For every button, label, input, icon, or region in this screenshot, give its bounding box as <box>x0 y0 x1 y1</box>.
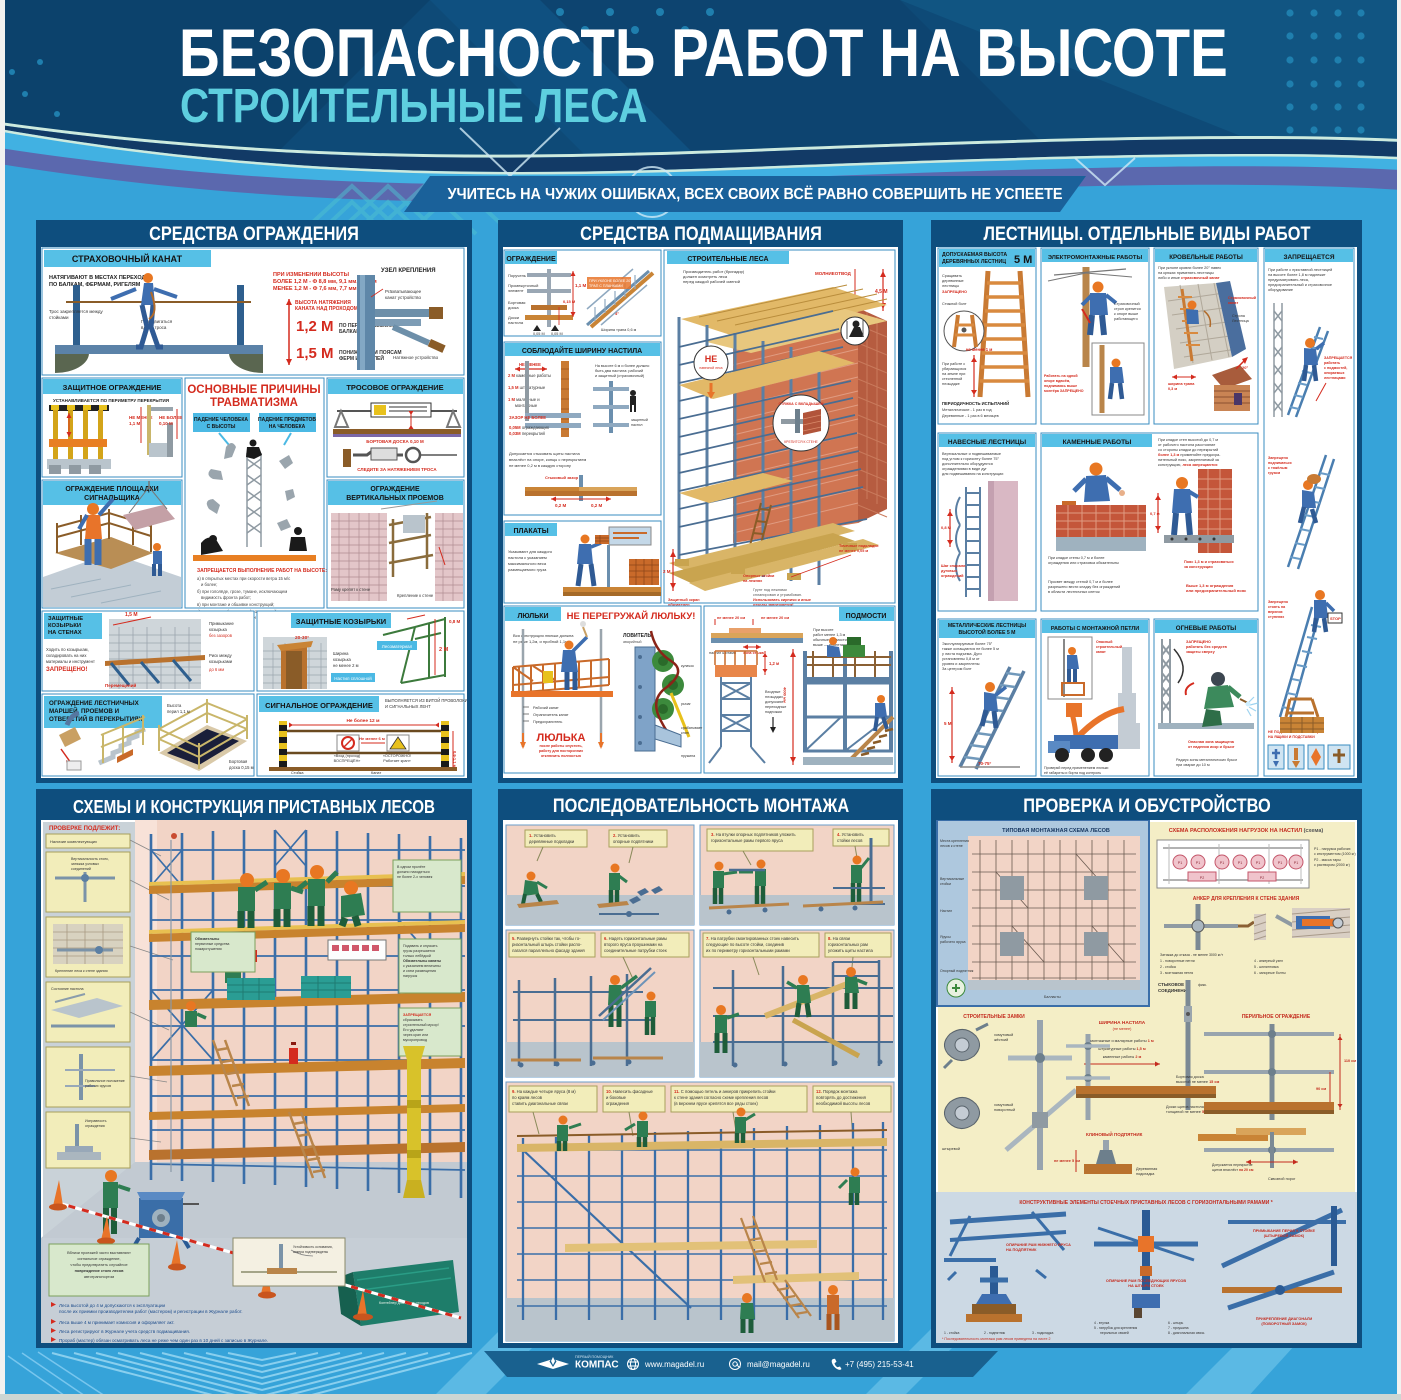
svg-text:2 М: 2 М <box>439 647 449 653</box>
svg-text:убирающихся: убирающихся <box>942 367 966 371</box>
svg-text:ЗАПРЕЩЕНО!: ЗАПРЕЩЕНО! <box>46 667 87 673</box>
svg-text:опорные подпятники: опорные подпятники <box>613 839 654 844</box>
svg-text:либо и иные страховочный канат: либо и иные страховочный канат <box>1158 276 1220 280</box>
svg-text:установлены 0,8 м от: установлены 0,8 м от <box>942 657 980 661</box>
svg-text:При работе с: При работе с <box>942 362 965 366</box>
svg-text:Грунт под лежнями: Грунт под лежнями <box>753 588 787 592</box>
svg-text:штыревой: штыревой <box>942 1147 960 1151</box>
svg-text:Р1 - нагрузка рабочих: Р1 - нагрузка рабочих <box>1314 847 1351 851</box>
svg-text:повторять до достижения: повторять до достижения <box>816 1095 866 1100</box>
svg-text:срабатывает: срабатывает <box>681 726 703 730</box>
svg-text:Леса регистрируют в Журнале уч: Леса регистрируют в Журнале учета средст… <box>59 1329 190 1334</box>
svg-text:дополнительно оборудуются: дополнительно оборудуются <box>942 462 993 466</box>
svg-text:ПАДЕНИЕ ЧЕЛОВЕКА: ПАДЕНИЕ ЧЕЛОВЕКА <box>194 417 248 423</box>
svg-text:ВОСПРЕЩЁН»: ВОСПРЕЩЁН» <box>334 759 361 763</box>
svg-text:Защитный экран: Защитный экран <box>668 598 700 602</box>
svg-text:ВЕРТИКАЛЬНЫХ ПРОЕМОВ: ВЕРТИКАЛЬНЫХ ПРОЕМОВ <box>346 495 444 502</box>
svg-text:Затяжка до отказа - не менее 3: Затяжка до отказа - не менее 3000 кг/т <box>1160 953 1224 957</box>
svg-text:Прораб (мастер) обязан осматри: Прораб (мастер) обязан осматривать леса … <box>59 1337 268 1343</box>
svg-text:5. Развернуть стойки так, чтоб: 5. Развернуть стойки так, чтобы го- <box>512 936 581 941</box>
svg-text:ДЕРЕВЯННЫХ ЛЕСТНИЦ: ДЕРЕВЯННЫХ ЛЕСТНИЦ <box>942 259 1006 265</box>
svg-text:Р1: Р1 <box>1278 861 1282 865</box>
svg-text:1 - поворотные петли: 1 - поворотные петли <box>1160 959 1195 963</box>
svg-text:Правильное положение: Правильное положение <box>85 1079 125 1083</box>
svg-text:При работе с приставной лестни: При работе с приставной лестницей <box>1268 268 1332 272</box>
svg-text:Запрещено: Запрещено <box>1268 456 1289 460</box>
svg-text:ЛЮЛЬКИ: ЛЮЛЬКИ <box>517 613 548 620</box>
svg-text:деревянные подкладки: деревянные подкладки <box>529 839 575 844</box>
svg-text:mail@magadel.ru: mail@magadel.ru <box>747 1360 810 1369</box>
svg-text:работать: работать <box>1324 361 1341 365</box>
svg-text:(ШТЫРЕВОЙ ЗАМОК): (ШТЫРЕВОЙ ЗАМОК) <box>1264 1234 1305 1238</box>
svg-text:через кран или: через кран или <box>403 1033 428 1037</box>
svg-text:20-30°: 20-30° <box>295 635 309 641</box>
svg-text:настила: настила <box>508 320 524 325</box>
svg-text:на лежнях: на лежнях <box>743 579 763 583</box>
svg-text:5 М: 5 М <box>944 721 952 726</box>
svg-text:ПЕРВЫЙ ПОМОЩНИК: ПЕРВЫЙ ПОМОЩНИК <box>575 1355 614 1359</box>
svg-text:20°: 20° <box>1242 365 1248 370</box>
svg-text:2. Установить: 2. Установить <box>613 833 640 838</box>
svg-text:1 М малярные и: 1 М малярные и <box>508 397 540 402</box>
svg-text:Запрещено: Запрещено <box>1268 600 1289 604</box>
svg-text:ступенях: ступенях <box>1268 615 1284 619</box>
svg-text:работать без средств: работать без средств <box>1186 645 1227 649</box>
svg-text:Состояние настила: Состояние настила <box>51 987 83 991</box>
svg-text:Поручень: Поручень <box>508 273 526 278</box>
svg-text:работу для посторонних: работу для посторонних <box>539 749 583 753</box>
svg-text:не менее 0,05 м: не менее 0,05 м <box>839 549 868 553</box>
svg-text:элемент: элемент <box>508 288 524 293</box>
svg-text:следующие по высоте стойки, со: следующие по высоте стойки, соединив <box>706 942 785 947</box>
svg-text:2 - подпятник: 2 - подпятник <box>984 1331 1006 1335</box>
svg-text:ЗАПРЕЩЕНО: ЗАПРЕЩЕНО <box>942 290 967 294</box>
svg-text:70-75°: 70-75° <box>978 761 992 766</box>
svg-text:ограждения: ограждения <box>85 1124 105 1128</box>
svg-text:КЛИНОВЫЙ ПОДПЯТНИК: КЛИНОВЫЙ ПОДПЯТНИК <box>1086 1130 1143 1137</box>
svg-text:Предохранитель: Предохранитель <box>533 720 562 724</box>
svg-text:Стойка: Стойка <box>291 771 304 775</box>
svg-text:Ограничитель канат: Ограничитель канат <box>533 713 569 717</box>
svg-text:ЛЮЛЬКА: ЛЮЛЬКА <box>537 732 586 744</box>
svg-text:доска: доска <box>508 305 519 310</box>
svg-text:ПОДМОСТИ: ПОДМОСТИ <box>846 613 887 620</box>
svg-text:каменные работы 2 м: каменные работы 2 м <box>1103 1055 1142 1059</box>
svg-text:пружина: пружина <box>681 754 695 758</box>
svg-text:лагался параллельно фасаду зда: лагался параллельно фасаду здания <box>512 948 585 953</box>
svg-text:Крепление к стене: Крепление к стене <box>397 593 434 598</box>
svg-text:6. Надеть горизонтальные рамы: 6. Надеть горизонтальные рамы <box>604 936 667 941</box>
svg-text:НЕ МЕНЕЕ: НЕ МЕНЕЕ <box>519 362 541 367</box>
svg-text:чтобы предотвратить случайное: чтобы предотвратить случайное <box>70 1263 127 1267</box>
svg-text:Эксплуатируемые более 75°: Эксплуатируемые более 75° <box>942 642 993 646</box>
svg-text:не менее 0,2 м в каждую сторон: не менее 0,2 м в каждую сторону <box>509 463 571 468</box>
svg-text:0,05М ограждающих: 0,05М ограждающих <box>509 425 550 430</box>
svg-text:Страховочный: Страховочный <box>1114 302 1140 306</box>
svg-text:9. На каждые четыре яруса (8 м: 9. На каждые четыре яруса (8 м) <box>512 1089 576 1094</box>
svg-text:толщиной не менее 5 см: толщиной не менее 5 см <box>1166 1110 1210 1114</box>
svg-text:и схем размещения: и схем размещения <box>403 969 436 973</box>
svg-text:должно находиться: должно находиться <box>397 870 430 874</box>
svg-text:1. Установить: 1. Установить <box>529 833 556 838</box>
svg-text:с указанием величины: с указанием величины <box>403 964 441 968</box>
svg-text:с инструментом (1000 кг): с инструментом (1000 кг) <box>1314 852 1356 856</box>
svg-text:Устойчивость основания,: Устойчивость основания, <box>293 1245 333 1249</box>
svg-text:4 - анкерный узел: 4 - анкерный узел <box>1254 959 1283 963</box>
svg-text:их по периметру горизонтальным: их по периметру горизонтальными рамами <box>706 948 790 953</box>
svg-text:ТИПОВАЯ МОНТАЖНАЯ СХЕМА ЛЕСОВ: ТИПОВАЯ МОНТАЖНАЯ СХЕМА ЛЕСОВ <box>1002 828 1110 834</box>
svg-text:Вблизи проезжей части выставля: Вблизи проезжей части выставляют <box>67 1251 131 1255</box>
svg-text:подниматься: подниматься <box>1268 461 1292 465</box>
svg-text:Входные: Входные <box>765 690 781 694</box>
svg-text:лесов к стене: лесов к стене <box>940 844 963 848</box>
svg-text:Настил сплошной: Настил сплошной <box>334 675 372 681</box>
svg-text:5 - патрубок для крепления: 5 - патрубок для крепления <box>1094 1326 1137 1330</box>
svg-text:Не более 12 м: Не более 12 м <box>346 717 380 724</box>
svg-text:лестницы: лестницы <box>942 284 959 288</box>
svg-text:от рабочего настила расстояние: от рабочего настила расстояние <box>1158 443 1215 447</box>
svg-text:НА ПОДПЯТНИК: НА ПОДПЯТНИК <box>1006 1248 1037 1252</box>
svg-text:под углом к горизонту более 75: под углом к горизонту более 75° <box>942 457 1000 461</box>
svg-text:ПЕРИЛЬНОЕ ОГРАЖДЕНИЕ: ПЕРИЛЬНОЕ ОГРАЖДЕНИЕ <box>1242 1014 1311 1020</box>
svg-text:грузом: грузом <box>1268 471 1280 475</box>
svg-text:10. Навесить фасадные: 10. Навесить фасадные <box>606 1089 654 1094</box>
svg-text:козырька: козырька <box>209 627 228 632</box>
svg-text:второго яруса проушинами на: второго яруса проушинами на <box>604 942 663 947</box>
svg-text:Деревянная: Деревянная <box>1136 1167 1157 1171</box>
svg-text:размещаемого груза: размещаемого груза <box>508 567 547 572</box>
svg-text:0,7 м: 0,7 м <box>1150 511 1160 516</box>
svg-text:Риск между: Риск между <box>209 653 233 658</box>
svg-text:Шаг спирали: Шаг спирали <box>941 564 966 568</box>
svg-text:козырьками: козырьками <box>209 659 233 664</box>
svg-text:6 - штырь: 6 - штырь <box>1168 1321 1183 1325</box>
svg-text:За центром болт: За центром болт <box>942 667 972 671</box>
svg-text:Р1: Р1 <box>1238 861 1242 865</box>
svg-text:Раму крепят к стене: Раму крепят к стене <box>331 587 371 592</box>
svg-text:защитный: защитный <box>631 418 648 422</box>
svg-text:В одном пролёте: В одном пролёте <box>397 865 425 869</box>
svg-text:лестницами: лестницами <box>1324 376 1345 380</box>
svg-text:с тяжёлым: с тяжёлым <box>1268 466 1288 470</box>
svg-text:Металлические - 1 раз в год: Металлические - 1 раз в год <box>942 408 992 412</box>
svg-text:КАНАТА НАД ПРОХОДОМ: КАНАТА НАД ПРОХОДОМ <box>295 306 358 312</box>
svg-text:Проверяй перед применением люл: Проверяй перед применением люльки <box>1044 766 1108 770</box>
svg-text:ЗАПРЕЩАЕТСЯ: ЗАПРЕЩАЕТСЯ <box>1324 356 1353 360</box>
svg-text:СОЕДИНЕНИЕ: СОЕДИНЕНИЕ <box>1158 988 1190 993</box>
svg-text:ОПИРАНИЕ РАМ НИЖНЕГО ЯРУСА: ОПИРАНИЕ РАМ НИЖНЕГО ЯРУСА <box>1006 1243 1071 1247</box>
svg-text:фикс.: фикс. <box>1198 983 1207 987</box>
svg-text:доска 0,15 м: доска 0,15 м <box>229 765 254 770</box>
svg-text:поворотный: поворотный <box>994 1108 1015 1112</box>
svg-text:Леса выше 4 м принимает комисс: Леса выше 4 м принимает комиссия и оформ… <box>59 1320 175 1325</box>
svg-text:верхних: верхних <box>1268 610 1283 614</box>
svg-text:Лестница: Лестница <box>1232 319 1250 323</box>
svg-text:90 см: 90 см <box>1316 1087 1326 1091</box>
svg-text:8 - диагональная связь: 8 - диагональная связь <box>1168 1331 1205 1335</box>
svg-text:предохранительный и страховочн: предохранительный и страховочное <box>1268 283 1332 287</box>
svg-text:с подмостей,: с подмостей, <box>1324 366 1347 370</box>
svg-text:Указывают для каждого: Указывают для каждого <box>508 549 553 554</box>
svg-text:И СИГНАЛЬНЫХ ЛЕНТ: И СИГНАЛЬНЫХ ЛЕНТ <box>385 704 431 709</box>
svg-text:Р1: Р1 <box>1220 861 1224 865</box>
svg-text:СТЫКОВОЕ: СТЫКОВОЕ <box>1158 982 1184 987</box>
svg-text:Опорный подпятник: Опорный подпятник <box>940 969 974 973</box>
svg-text:Просвет между стеной 0,7 м и б: Просвет между стеной 0,7 м и более <box>1048 580 1113 584</box>
svg-text:допускают: допускают <box>765 700 784 704</box>
svg-text:монтёра ЗАПРЕЩЕНО: монтёра ЗАПРЕЩЕНО <box>1044 389 1084 393</box>
svg-text:Деревянные - 1 раз в 6 месяцев: Деревянные - 1 раз в 6 месяцев <box>942 414 999 418</box>
svg-text:КОМПАС: КОМПАС <box>575 1360 619 1371</box>
svg-text:7 - проушина: 7 - проушина <box>1168 1326 1189 1330</box>
svg-text:2 М: 2 М <box>663 569 671 574</box>
svg-text:ДОПУСКАЕМАЯ ВЫСОТА: ДОПУСКАЕМАЯ ВЫСОТА <box>942 252 1007 258</box>
svg-text:С ВЫСОТЫ: С ВЫСОТЫ <box>207 424 236 430</box>
svg-text:ОГРАЖДЕНИЕ: ОГРАЖДЕНИЕ <box>370 486 420 493</box>
svg-text:ПРОВЕРКЕ ПОДЛЕЖИТ:: ПРОВЕРКЕ ПОДЛЕЖИТ: <box>49 826 120 832</box>
svg-text:Вертикальность стоек,: Вертикальность стоек, <box>71 857 109 861</box>
svg-text:0,05 М: 0,05 М <box>551 332 563 336</box>
svg-text:0,2 М: 0,2 М <box>591 503 603 508</box>
svg-text:соединительные патрубки стоек: соединительные патрубки стоек <box>604 948 667 953</box>
svg-text:к опоре выше: к опоре выше <box>1114 312 1138 316</box>
svg-text:STOP: STOP <box>1330 616 1341 621</box>
svg-text:не менее 5 см: не менее 5 см <box>1054 1159 1080 1163</box>
svg-text:* Последовательность монтажа р: * Последовательность монтажа рам лесов п… <box>942 1337 1051 1341</box>
svg-text:4000 мм: 4000 мм <box>783 687 788 703</box>
svg-text:стойки лесов: стойки лесов <box>837 838 863 843</box>
svg-text:0,10 М: 0,10 М <box>159 421 173 426</box>
svg-text:автотранспортом: автотранспортом <box>84 1275 115 1279</box>
svg-text:уложить щиты настила: уложить щиты настила <box>828 948 873 953</box>
svg-text:первичные средства: первичные средства <box>195 942 229 946</box>
svg-text:5 М: 5 М <box>1014 254 1032 266</box>
svg-text:Ходить по козырькам,: Ходить по козырькам, <box>46 647 89 652</box>
svg-text:ЗАПРЕЩАЕТСЯ: ЗАПРЕЩАЕТСЯ <box>1283 254 1334 261</box>
svg-text:анкера подтверждены: анкера подтверждены <box>293 1250 329 1254</box>
svg-text:Стыковый зазор: Стыковый зазор <box>545 475 579 480</box>
svg-text:до 6 мм: до 6 мм <box>209 667 224 672</box>
svg-text:предусматривать леса,: предусматривать леса, <box>1268 278 1309 282</box>
svg-text:7. На патрубки смонтированных: 7. На патрубки смонтированных стоек наве… <box>706 936 800 941</box>
svg-text:в) при монтаже и обшивке конст: в) при монтаже и обшивке конструкций; <box>197 602 274 607</box>
svg-text:СХЕМА РАСПОЛОЖЕНИЯ НАГРУЗОК НА: СХЕМА РАСПОЛОЖЕНИЯ НАГРУЗОК НА НАСТИЛ (с… <box>1169 828 1324 834</box>
svg-text:Р1: Р1 <box>1294 861 1298 865</box>
svg-text:НА ЯЩИКИ И ПОДСТАВКИ: НА ЯЩИКИ И ПОДСТАВКИ <box>1268 735 1315 739</box>
svg-text:Präхватывающее: Präхватывающее <box>385 289 422 294</box>
svg-text:опираемых: опираемых <box>1324 371 1344 375</box>
svg-text:«ОСТОРОЖНО!: «ОСТОРОЖНО! <box>383 754 411 758</box>
svg-text:ОГРАЖДЕНИЕ: ОГРАЖДЕНИЕ <box>506 256 556 263</box>
svg-text:www.magadel.ru: www.magadel.ru <box>644 1360 704 1369</box>
svg-text:перил 1,1 м: перил 1,1 м <box>167 709 190 714</box>
svg-text:ПО БАЛКАМ, ФЕРМАМ, РИГЕЛЯМ: ПО БАЛКАМ, ФЕРМАМ, РИГЕЛЯМ <box>49 282 141 288</box>
svg-text:ЗАПРЕЩАЕТСЯ ВЫПОЛНЕНИЕ РАБОТ Н: ЗАПРЕЩАЕТСЯ ВЫПОЛНЕНИЕ РАБОТ НА ВЫСОТЕ: <box>197 568 327 574</box>
svg-text:Стяжной болт: Стяжной болт <box>942 302 967 306</box>
svg-text:Наличие комплектующих: Наличие комплектующих <box>50 839 97 844</box>
svg-text:0,15 М: 0,15 М <box>563 299 576 304</box>
svg-text:1 - стойка: 1 - стойка <box>944 1331 959 1335</box>
svg-text:нагрузок: нагрузок <box>403 974 418 978</box>
svg-text:Трос закрепляется между: Трос закрепляется между <box>49 309 104 314</box>
svg-text:Р2: Р2 <box>1200 876 1204 880</box>
svg-text:ОПИРАНИЕ РАМ ПОСЛЕДУЮЩИХ ЯРУСО: ОПИРАНИЕ РАМ ПОСЛЕДУЮЩИХ ЯРУСОВ <box>1106 1279 1186 1283</box>
svg-text:Р1: Р1 <box>1256 861 1260 865</box>
svg-text:СТРОИТЕЛЬНЫЕ ЛЕСА: СТРОИТЕЛЬНЫЕ ЛЕСА <box>687 256 768 263</box>
svg-text:При уклоне кровли более 20° на: При уклоне кровли более 20° навес <box>1158 266 1221 270</box>
svg-text:только лебёдкой: только лебёдкой <box>403 954 431 958</box>
svg-text:4. Установить: 4. Установить <box>837 832 864 837</box>
svg-text:работающего: работающего <box>1114 317 1138 321</box>
svg-text:СОБЛЮДАЙТЕ ШИРИНУ НАСТИЛА: СОБЛЮДАЙТЕ ШИРИНУ НАСТИЛА <box>522 346 642 355</box>
svg-text:конструкцию, леса запрещаются: конструкцию, леса запрещаются <box>1158 463 1218 467</box>
svg-text:ставить диагональные связи: ставить диагональные связи <box>512 1101 569 1106</box>
svg-text:сбрасывать: сбрасывать <box>403 1018 423 1022</box>
svg-text:Работать на одной: Работать на одной <box>1044 374 1078 378</box>
svg-text:настила с указанием: настила с указанием <box>508 555 547 560</box>
svg-text:Вертикальные и подвешиваемые: Вертикальные и подвешиваемые <box>942 452 1001 456</box>
svg-text:после работы опустить,: после работы опустить, <box>539 744 582 748</box>
svg-text:(не менее): (не менее) <box>1113 1027 1133 1031</box>
svg-text:ОГНЕВЫЕ РАБОТЫ: ОГНЕВЫЕ РАБОТЫ <box>1176 625 1236 632</box>
svg-text:8. На связи: 8. На связи <box>828 936 851 941</box>
svg-text:ПРИ УКЛОНЕ БОЛЕЕ 20°: ПРИ УКЛОНЕ БОЛЕЕ 20° <box>589 279 632 283</box>
svg-text:Леса высотой до 4 м допускаютс: Леса высотой до 4 м допускаются к эксплу… <box>59 1302 166 1308</box>
svg-text:стойками: стойками <box>49 314 69 320</box>
svg-text:1,5 М: 1,5 М <box>125 612 138 618</box>
svg-text:3. На втулки опорных подпятник: 3. На втулки опорных подпятников уложить <box>711 832 796 837</box>
svg-text:Канат: Канат <box>371 771 381 775</box>
svg-text:Страховочный: Страховочный <box>1228 296 1257 300</box>
svg-text:при сварке до 10 м: при сварке до 10 м <box>1176 763 1210 767</box>
svg-text:на земле при: на земле при <box>942 372 965 376</box>
svg-text:СИГНАЛЬНОЕ ОГРАЖДЕНИЕ: СИГНАЛЬНОЕ ОГРАЖДЕНИЕ <box>265 701 373 710</box>
svg-text:Вертикальные: Вертикальные <box>940 877 964 881</box>
svg-text:2 - стойка: 2 - стойка <box>1160 965 1176 969</box>
svg-text:щитов внахлёст на 20 см: щитов внахлёст на 20 см <box>1212 1168 1254 1172</box>
svg-text:навесной леса: навесной леса <box>699 366 722 370</box>
svg-text:Ярусы: Ярусы <box>940 935 951 939</box>
svg-text:1,2 м: 1,2 м <box>769 661 779 666</box>
svg-text:КРЕПИТСЯ К СТЕНЕ: КРЕПИТСЯ К СТЕНЕ <box>784 440 818 444</box>
svg-text:ПЛАКАТЫ: ПЛАКАТЫ <box>513 528 548 535</box>
svg-text:рабочего яруса: рабочего яруса <box>940 940 966 944</box>
svg-text:повреждение стоек лесов: повреждение стоек лесов <box>75 1269 124 1273</box>
svg-text:Пояс 1,3 м и страховаться: Пояс 1,3 м и страховаться <box>1184 560 1234 564</box>
svg-text:Работает кран»: Работает кран» <box>383 759 410 763</box>
svg-text:3 - подкладка: 3 - подкладка <box>1032 1331 1053 1335</box>
svg-text:ПРИ ИЗМЕНЕНИИ ВЫСОТЫ: ПРИ ИЗМЕНЕНИИ ВЫСОТЫ <box>273 272 350 278</box>
svg-text:ЭЛЕКТРОМОНТАЖНЫЕ РАБОТЫ: ЭЛЕКТРОМОНТАЖНЫЕ РАБОТЫ <box>1048 255 1143 261</box>
svg-text:МОЛНИЕОТВОД: МОЛНИЕОТВОД <box>815 271 852 276</box>
svg-text:грузы разрешается: грузы разрешается <box>403 949 435 953</box>
svg-text:защиты сверху: защиты сверху <box>1186 650 1216 654</box>
svg-text:Допускается стыковать щиты нас: Допускается стыковать щиты настила <box>509 451 580 456</box>
svg-text:также оснащаются не более 5 м: также оснащаются не более 5 м <box>942 647 999 651</box>
svg-text:1,1 М: 1,1 М <box>575 283 587 288</box>
svg-text:в области лестничных клеток: в области лестничных клеток <box>1048 590 1100 594</box>
svg-text:строительный мусор!: строительный мусор! <box>403 1023 439 1027</box>
svg-text:переходные: переходные <box>765 705 786 709</box>
svg-text:ПРИКРЕПЛЕНИЕ ДИАГОНАЛИ: ПРИКРЕПЛЕНИЕ ДИАГОНАЛИ <box>1256 1317 1313 1321</box>
svg-text:необходимой высоты лесов: необходимой высоты лесов <box>816 1101 871 1106</box>
svg-text:Балласты: Балласты <box>1044 995 1061 999</box>
svg-text:ширина трапа: ширина трапа <box>1168 382 1195 386</box>
svg-text:Допускается перекрытие: Допускается перекрытие <box>1212 1163 1253 1167</box>
svg-text:высотой не менее 15 см: высотой не менее 15 см <box>1176 1080 1219 1084</box>
svg-text:горизонтальные рамы первого яр: горизонтальные рамы первого яруса <box>711 838 783 843</box>
svg-text:внахлёст на опоре, концы с пер: внахлёст на опоре, концы с перекрытием <box>509 457 586 462</box>
svg-text:Опасная зона защищена: Опасная зона защищена <box>1188 740 1235 744</box>
svg-text:Примыкание: Примыкание <box>209 621 234 626</box>
svg-text:ТРАВМАТИЗМА: ТРАВМАТИЗМА <box>210 397 298 409</box>
svg-text:ризонтальный штырь стойки расп: ризонтальный штырь стойки распо- <box>512 942 582 947</box>
svg-text:с раствором (2000 кг): с раствором (2000 кг) <box>1314 863 1350 867</box>
svg-text:монтажные и малярные работы 1: монтажные и малярные работы 1 м <box>1090 1039 1154 1043</box>
svg-text:0,05 М: 0,05 М <box>533 332 545 336</box>
svg-text:НАВЕСНЫЕ ЛЕСТНИЦЫ: НАВЕСНЫЕ ЛЕСТНИЦЫ <box>948 439 1026 446</box>
svg-text:перильных связей: перильных связей <box>1100 1331 1129 1335</box>
svg-text:НЕ: НЕ <box>705 354 718 364</box>
svg-text:На высоте 6 м и более должно: На высоте 6 м и более должно <box>595 364 649 368</box>
svg-text:ЗАЩИТНЫЕ КОЗЫРЬКИ: ЗАЩИТНЫЕ КОЗЫРЬКИ <box>296 617 386 626</box>
svg-text:не менее 2 м: не менее 2 м <box>333 663 359 668</box>
svg-text:ПЕРИОДИЧНОСТЬ ИСПЫТАНИЙ: ПЕРИОДИЧНОСТЬ ИСПЫТАНИЙ <box>942 401 1009 406</box>
svg-text:ЛОВИТЕЛЬ: ЛОВИТЕЛЬ <box>623 633 651 639</box>
svg-text:110 см: 110 см <box>1344 1059 1356 1063</box>
svg-text:а) в открытых местах при скоро: а) в открытых местах при скорости ветра … <box>197 576 290 581</box>
svg-text:поднимаясь выше: поднимаясь выше <box>1044 384 1077 388</box>
svg-text:ПРИМЫКАНИЕ ПЕРИЛ К СТОЙКЕ: ПРИМЫКАНИЕ ПЕРИЛ К СТОЙКЕ <box>1253 1229 1315 1233</box>
svg-text:спланирован и утрамбован.: спланирован и утрамбован. <box>753 593 802 597</box>
svg-text:ТРАП С ПЛАНКАМИ: ТРАП С ПЛАНКАМИ <box>589 284 623 288</box>
svg-text:НЕ БОЛЕЕ: НЕ БОЛЕЕ <box>159 415 182 420</box>
svg-text:«Вход (проход): «Вход (проход) <box>334 754 361 758</box>
svg-text:Не менее 6 м: Не менее 6 м <box>359 736 385 741</box>
svg-text:Исправность: Исправность <box>85 1119 107 1123</box>
svg-text:ограждений: ограждений <box>941 574 964 578</box>
svg-text:Доски щитов настила: Доски щитов настила <box>1166 1105 1205 1109</box>
svg-text:ограждениями в виде дуг: ограждениями в виде дуг <box>942 467 987 471</box>
svg-text:0,8-1,1 м: 0,8-1,1 м <box>453 751 458 768</box>
svg-text:материалы и инструмент: материалы и инструмент <box>46 659 95 664</box>
svg-text:Бортовая: Бортовая <box>229 759 247 764</box>
svg-text:Настил: Настил <box>940 909 952 913</box>
svg-text:4 - втулка: 4 - втулка <box>1094 1321 1109 1325</box>
svg-text:на крюках применять лестницы: на крюках применять лестницы <box>1158 271 1214 275</box>
svg-text:АНКЕР ДЛЯ КРЕПЛЕНИЯ К СТЕНЕ ЗД: АНКЕР ДЛЯ КРЕПЛЕНИЯ К СТЕНЕ ЗДАНИЯ <box>1193 896 1300 902</box>
svg-text:по краям лесов: по краям лесов <box>512 1095 543 1100</box>
svg-text:УЗЕЛ КРЕПЛЕНИЯ: УЗЕЛ КРЕПЛЕНИЯ <box>381 268 436 274</box>
svg-text:0,2 М: 0,2 М <box>555 503 567 508</box>
svg-text:3 - монтажная петля: 3 - монтажная петля <box>1160 971 1193 975</box>
svg-text:к стене здания согласно схеме: к стене здания согласно схеме крепления … <box>674 1095 769 1100</box>
svg-text:ЗАПРЕЩЕНО: ЗАПРЕЩЕНО <box>1186 640 1211 644</box>
svg-text:перед каждой рабочей сменой: перед каждой рабочей сменой <box>683 279 740 284</box>
svg-text:1,2 М: 1,2 М <box>296 318 334 335</box>
svg-text:Использовать кирпичи и иные: Использовать кирпичи и иные <box>753 598 811 602</box>
svg-text:и защитный (страховочный): и защитный (страховочный) <box>595 374 645 378</box>
svg-text:РАБОТЫ С МОНТАЖНОЙ ПЕТЛИ: РАБОТЫ С МОНТАЖНОЙ ПЕТЛИ <box>1051 624 1139 632</box>
svg-text:ОГРАЖДЕНИЕ ЛЕСТНИЧНЫХ: ОГРАЖДЕНИЕ ЛЕСТНИЧНЫХ <box>49 700 140 707</box>
svg-text:СТРАХОВОЧНЫЙ КАНАТ: СТРАХОВОЧНЫЙ КАНАТ <box>72 253 183 264</box>
svg-text:Р2 - масса тары: Р2 - масса тары <box>1314 858 1341 862</box>
svg-text:и боковые: и боковые <box>606 1095 627 1100</box>
svg-text:ЗАПРЕЩАЕТСЯ: ЗАПРЕЩАЕТСЯ <box>403 1013 432 1017</box>
svg-text:При кладке стен высотой до 0,7: При кладке стен высотой до 0,7 м <box>1158 438 1218 442</box>
svg-text:сигнальное ограждение,: сигнальное ограждение, <box>77 1257 120 1261</box>
svg-text:соединений: соединений <box>71 867 91 871</box>
